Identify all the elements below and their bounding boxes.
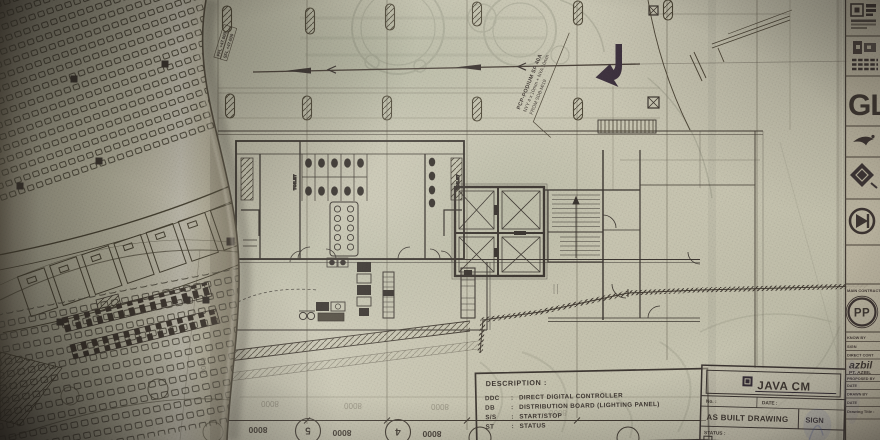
corner-shadow-top-right — [580, 0, 880, 220]
blueprint-scene: FFL +47.000 SFL +47.000 PCP-PODIUM SP 40… — [0, 0, 880, 440]
corner-shadow-bottom-left — [0, 160, 340, 440]
blueprint-photo: FFL +47.000 SFL +47.000 PCP-PODIUM SP 40… — [0, 0, 880, 440]
